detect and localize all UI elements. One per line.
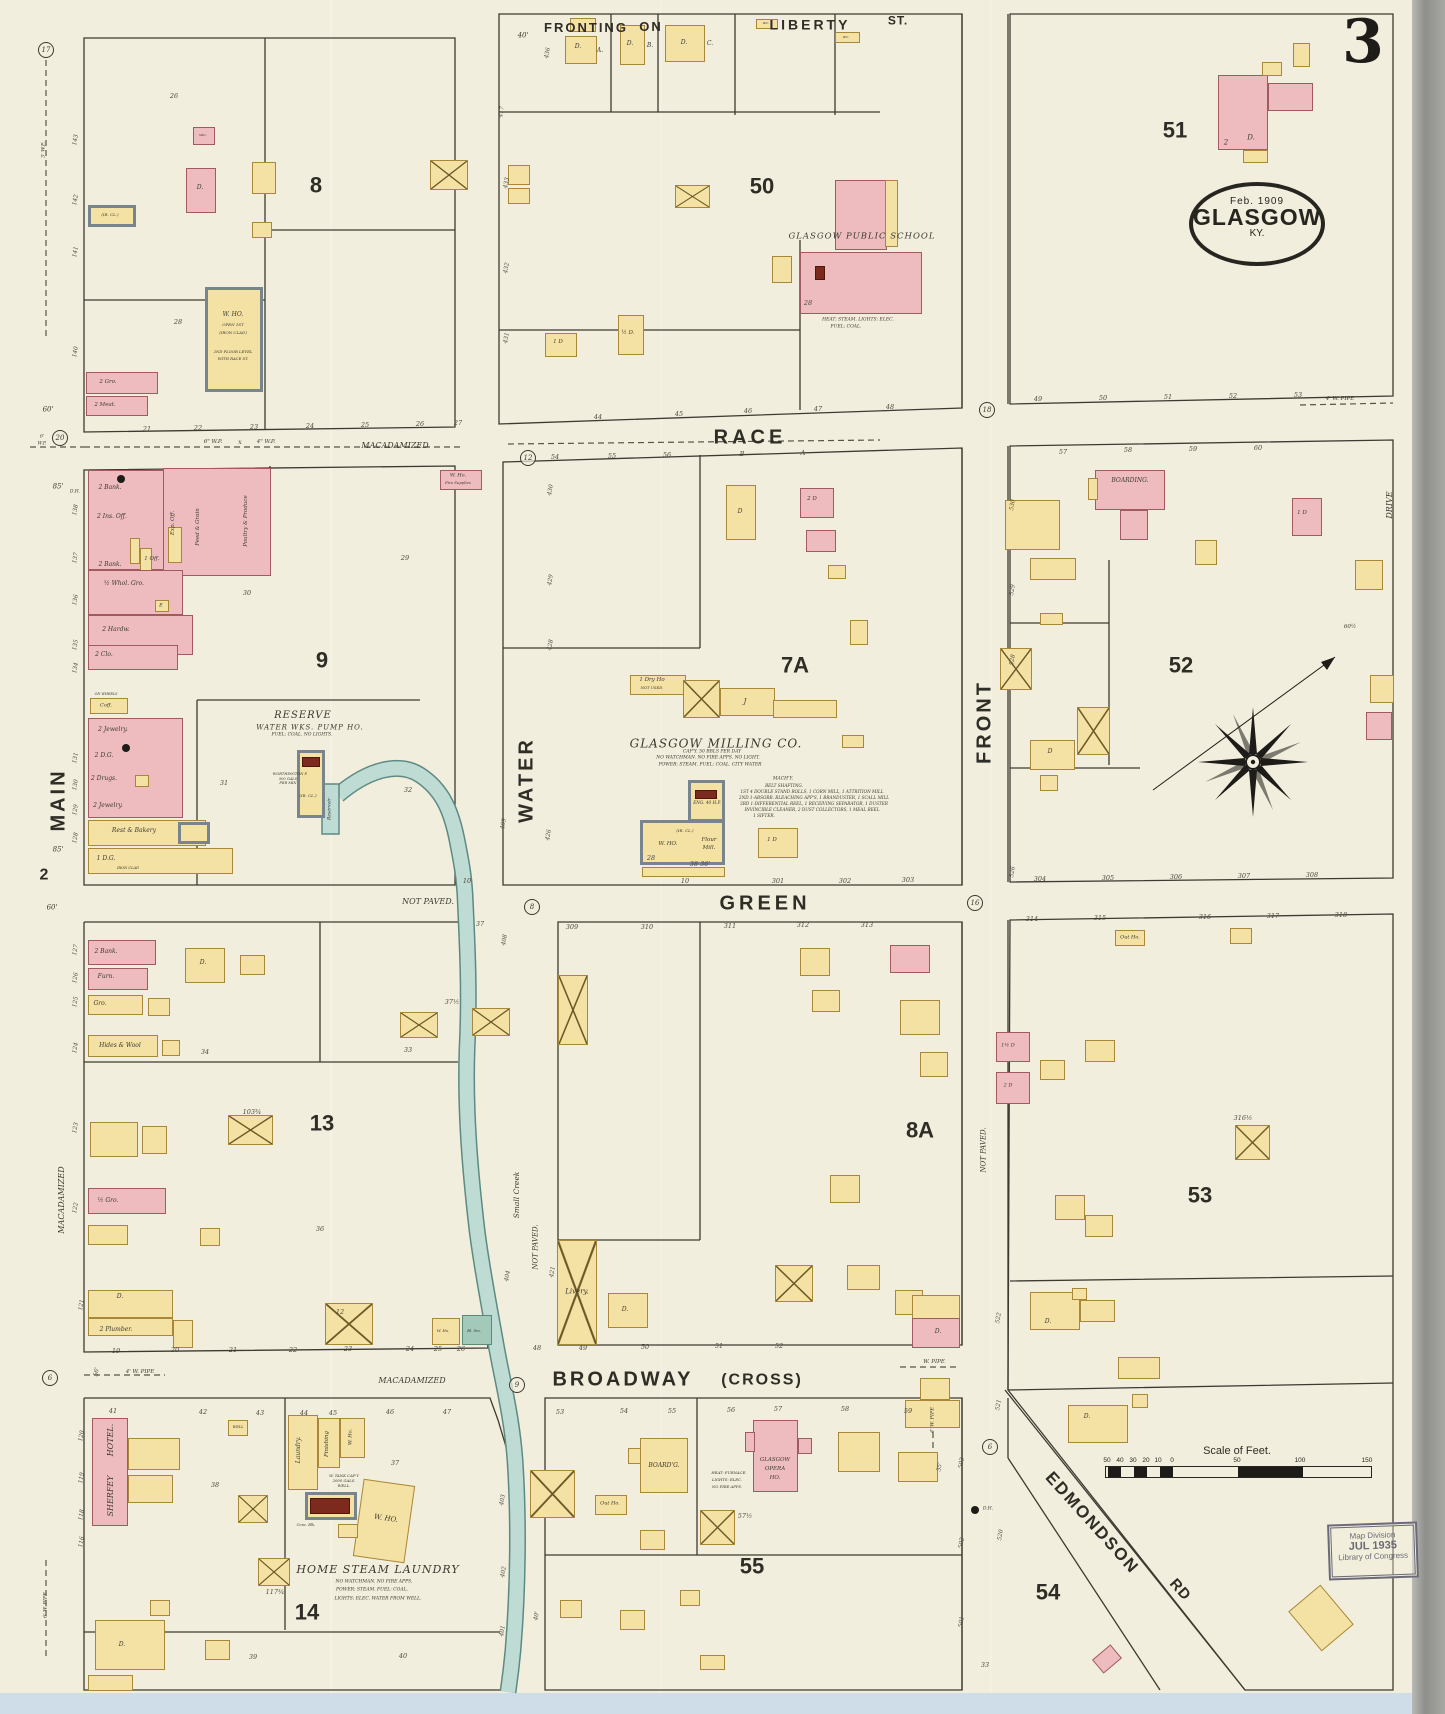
map-label: NOT PAVED.: [980, 1127, 987, 1172]
map-label: FUEL: COAL. NO LIGHTS.: [271, 734, 332, 739]
lot-number: 45: [329, 1409, 337, 1417]
lot-number: 23: [344, 1345, 352, 1353]
lot-number: 46: [744, 407, 752, 415]
map-label: 6' W. PIPE: [43, 1592, 48, 1618]
street-width-marker: 9: [509, 1377, 525, 1393]
frame-building: [205, 287, 263, 392]
map-label: PER MIN: [279, 782, 296, 786]
frame-building: [258, 1558, 290, 1586]
frame-building: [1085, 1040, 1115, 1062]
lot-number: 38: [211, 1481, 219, 1489]
lot-number: 316½: [1234, 1114, 1253, 1122]
frame-building: [205, 1640, 230, 1660]
lot-number: 10: [681, 877, 689, 885]
lot-number: 103¾: [243, 1108, 262, 1116]
lot-number: 42: [199, 1408, 207, 1416]
map-label: 60½: [1344, 625, 1356, 631]
frame-building: [200, 1228, 220, 1246]
map-label: D.H.: [983, 1508, 993, 1513]
lot-number: 54: [551, 453, 559, 461]
map-label: 2 D: [807, 497, 817, 503]
scale-tick-label: 10: [1154, 1457, 1161, 1464]
map-label: 6" W.P.: [204, 440, 223, 446]
frame-building: [683, 680, 720, 718]
lot-number: 34: [201, 1048, 209, 1056]
lot-number: 302: [839, 877, 851, 885]
frame-building: [430, 160, 468, 190]
frame-building: [920, 1052, 948, 1077]
frame-building: [1132, 1394, 1148, 1408]
map-label: NOT PAVED.: [402, 898, 454, 906]
scale-segment: [1134, 1467, 1147, 1477]
lot-number: 47: [443, 1408, 451, 1416]
map-label: ½ D.: [621, 331, 634, 337]
map-label: Out Ho.: [600, 1501, 620, 1506]
boiler: [310, 1498, 350, 1514]
map-label: 1ST 4 DOUBLE STAND ROLLS, 1 CORN MILL, 1…: [740, 790, 883, 794]
map-label: D: [738, 509, 743, 515]
map-label: D.: [935, 1329, 942, 1335]
frame-building: [1293, 43, 1310, 67]
scale-tick-label: 0: [1170, 1457, 1174, 1464]
map-label: BOARDING.: [1111, 478, 1148, 484]
map-label: LIGHTS: ELEC.: [712, 1478, 742, 1482]
map-label: (IR. CL.): [101, 213, 118, 217]
lot-number: 53: [556, 1408, 564, 1416]
map-label: 2ND FLOOR LEVEL: [214, 350, 253, 354]
frame-building: [1118, 1357, 1160, 1379]
lot-number: 31: [220, 779, 228, 787]
lot-number: 22: [289, 1346, 297, 1354]
map-label: GLASGOW MILLING CO.: [630, 738, 803, 751]
map-label: 1 Dry Ho: [639, 678, 664, 684]
street-name-green: GREEN: [719, 894, 810, 915]
frame-building: [675, 185, 710, 208]
map-label: NO WATCHMAN. NO FIRE APPS.: [336, 1581, 413, 1586]
map-label: GLASGOW PUBLIC SCHOOL: [788, 233, 935, 242]
map-label: POWER: STEAM. FUEL: COAL.: [336, 1589, 408, 1594]
map-label: WELL: [232, 1426, 243, 1430]
map-label: Feed & Grain: [196, 508, 202, 546]
frame-building: [238, 1495, 268, 1523]
map-label: B.: [647, 43, 653, 49]
map-label: D: [1048, 749, 1053, 755]
frame-building: [775, 1265, 813, 1302]
lot-number: 41: [109, 1407, 117, 1415]
frame-building: [142, 1126, 167, 1154]
map-label: vac.: [199, 133, 207, 137]
lot-number: 315: [1094, 914, 1106, 922]
map-label: NOT USED.: [641, 686, 664, 690]
street-name-water: WATER: [517, 737, 538, 823]
map-label: 2: [1224, 139, 1228, 146]
lot-number: 304: [1034, 875, 1046, 883]
map-label: BOARD'G.: [648, 1463, 679, 1469]
lot-number: 12: [336, 1308, 344, 1316]
frame-building: [472, 1008, 510, 1036]
frame-building: [1235, 1125, 1270, 1160]
frame-building: [800, 948, 830, 976]
lot-number: 60: [1254, 444, 1262, 452]
map-label: C.: [707, 41, 713, 47]
map-label: 1 D: [1297, 511, 1307, 517]
map-label: 2 Jewelry.: [98, 727, 128, 733]
lot-number: 43: [256, 1409, 264, 1417]
frame-building: [850, 620, 868, 645]
frame-building: [898, 1452, 938, 1482]
map-label: 40': [518, 32, 529, 39]
lot-number: 316: [1199, 913, 1211, 921]
map-label: 85': [53, 846, 64, 853]
map-label: ½ Gro.: [98, 1198, 119, 1204]
frame-building: [720, 688, 775, 716]
lot-number: 313: [861, 921, 873, 929]
frame-building: [88, 1290, 173, 1318]
street-name-broadway: BROADWAY: [552, 1370, 693, 1391]
brick-building: [890, 945, 930, 973]
lot-number: 20: [171, 1346, 179, 1354]
lot-number: 51: [1164, 393, 1172, 401]
map-label: x: [238, 440, 241, 446]
map-label: 6': [40, 436, 44, 441]
frame-building: [1077, 707, 1110, 755]
lot-number: 23: [250, 423, 258, 431]
map-label: D.: [119, 1642, 126, 1648]
map-label: DRIVE: [1386, 491, 1394, 518]
frame-building: [642, 867, 725, 877]
map-label: Finishing: [325, 1431, 331, 1457]
map-label: Flour: [701, 838, 716, 844]
lot-number: 37: [391, 1459, 399, 1467]
lot-number: 26: [416, 420, 424, 428]
map-label: D.: [681, 40, 688, 46]
lot-number: B: [740, 450, 745, 458]
map-label: w.c.: [843, 36, 850, 40]
lot-number: 32: [404, 786, 412, 794]
frame-building: [130, 538, 140, 564]
lot-number: 56: [663, 451, 671, 459]
lot-number: 317: [1267, 912, 1279, 920]
lot-number: 26: [170, 92, 178, 100]
map-label: 2 D.G.: [95, 753, 114, 759]
frame-building: [1088, 478, 1098, 500]
map-label: 1 Off.: [144, 557, 159, 563]
street-name-on: ON: [639, 20, 663, 34]
map-label: WATER WKS. PUMP HO.: [256, 724, 363, 731]
frame-building: [1068, 1405, 1128, 1443]
map-label: WITH RACE ST.: [218, 357, 249, 361]
brick-building: [798, 1438, 812, 1454]
frame-building: [900, 1000, 940, 1035]
frame-building: [1040, 1060, 1065, 1080]
street-name-race: RACE: [714, 428, 787, 449]
map-label: INVINCIBLE CLEANER, 2 DUST COLLECTORS, 1…: [745, 808, 880, 812]
frame-building: [338, 1524, 358, 1538]
frame-building: [508, 188, 530, 204]
scale-segment: [1173, 1467, 1238, 1477]
scale-tick-label: 50: [1233, 1457, 1240, 1464]
map-label: 2 Plumber.: [100, 1327, 133, 1333]
map-label: 60': [47, 904, 58, 911]
frame-building: [680, 1590, 700, 1606]
lot-number: 33: [404, 1046, 412, 1054]
block-number-52: 52: [1169, 653, 1193, 676]
map-label: FUEL: COAL.: [831, 326, 862, 331]
street-name-front: FRONT: [975, 680, 996, 764]
lot-number: 314: [1026, 915, 1038, 923]
map-label: Out Ho.: [1120, 935, 1140, 940]
lot-number: 30: [243, 589, 251, 597]
map-label: GLASGOW: [760, 1458, 790, 1464]
map-label: 85': [53, 483, 64, 490]
map-label: Laundry.: [296, 1437, 302, 1464]
lot-number: 311: [724, 922, 736, 930]
block-number-9: 9: [316, 648, 328, 671]
brick-building: [800, 488, 834, 518]
frame-building: [1230, 928, 1252, 944]
map-label: W. Ho.: [437, 1329, 449, 1333]
map-label: D.: [1045, 1319, 1052, 1325]
lot-number: 25: [434, 1345, 442, 1353]
lot-number: 50: [641, 1343, 649, 1351]
frame-building: [128, 1475, 173, 1503]
map-label: D.: [197, 185, 204, 191]
sanborn-map-page: { "page":{"number":"3"}, "stamp":{"date"…: [0, 0, 1445, 1714]
lot-number: 49: [1034, 395, 1042, 403]
map-label: W. Ho.: [348, 1429, 353, 1445]
frame-building: [228, 1115, 273, 1145]
map-label: D.: [622, 1307, 629, 1313]
map-label: 2 Ins. Off.: [97, 514, 127, 520]
lot-number: 59: [904, 1407, 912, 1415]
lot-number: 46: [386, 1408, 394, 1416]
frame-building: [1085, 1215, 1113, 1237]
map-label: Poultry & Produce: [244, 495, 250, 546]
boiler: [815, 266, 825, 280]
map-label: ON WHEELS: [95, 693, 118, 697]
map-label: D.: [200, 960, 207, 966]
block-number-55: 55: [740, 1554, 764, 1577]
lot-number: 301: [772, 877, 784, 885]
lot-number: 49: [579, 1344, 587, 1352]
map-label: POWER: STEAM. FUEL: COAL. CITY WATER: [658, 764, 761, 769]
street-name-cross: (CROSS): [721, 1373, 803, 1390]
lot-number: 24: [406, 1345, 414, 1353]
map-label: 2 Clo.: [95, 652, 113, 658]
frame-building: [162, 1040, 180, 1056]
map-label: 2 Bank.: [94, 949, 117, 955]
frame-building: [90, 1122, 138, 1157]
lot-number: 10: [463, 877, 471, 885]
frame-building: [1243, 150, 1268, 163]
lot-number: 48: [886, 403, 894, 411]
map-label: 4' W. PIPE: [126, 1370, 155, 1376]
map-label: W. HO.: [659, 842, 678, 848]
frame-building: [830, 1175, 860, 1203]
brick-building: [996, 1072, 1030, 1104]
frame-building: [150, 1600, 170, 1616]
frame-building: [640, 1530, 665, 1550]
map-label: OPERA: [765, 1467, 785, 1473]
stamp-city: GLASGOW: [1193, 207, 1321, 228]
map-label: Gro.: [93, 1001, 106, 1007]
map-label: 1 D.G.: [97, 856, 116, 862]
map-label: NO WATCHMAN. NO FIRE APPS. NO LIGHT.: [656, 757, 759, 762]
frame-building: [128, 1438, 180, 1470]
frame-building: [508, 165, 530, 185]
map-label: 2ND 1-ABSORB. BLEACHING APP'S, 1 BRANDUS…: [739, 796, 889, 800]
lot-number: 24: [306, 422, 314, 430]
lot-number: 58: [841, 1405, 849, 1413]
map-label: (IR. CL.): [676, 829, 693, 833]
frame-building: [288, 1415, 318, 1490]
frame-building: [95, 1620, 165, 1670]
brick-building: [1366, 712, 1392, 740]
map-label: HOTEL.: [107, 1424, 115, 1457]
frame-building: [773, 700, 837, 718]
lot-number: 57: [1059, 448, 1067, 456]
frame-building: [1030, 740, 1075, 770]
frame-building: [1040, 775, 1058, 791]
brick-building: [745, 1432, 755, 1452]
brick-building: [1120, 510, 1148, 540]
lot-number: 44: [594, 413, 602, 421]
map-label: Rest & Bakery: [112, 828, 156, 834]
map-label: MACADAMIZED: [58, 1166, 66, 1233]
street-name-st: ST.: [888, 15, 908, 28]
map-label: Hides & Wool: [99, 1043, 141, 1049]
map-label: J: [744, 698, 747, 705]
lot-number: 29: [401, 554, 409, 562]
lot-number: 39: [249, 1653, 257, 1661]
map-label: NOT PAVED.: [532, 1224, 539, 1269]
frame-building: [530, 1470, 575, 1518]
map-label: HEAT: STEAM. LIGHTS: ELEC.: [822, 319, 894, 324]
street-width-marker: 6: [42, 1370, 58, 1386]
lot-number: 306: [1170, 873, 1182, 881]
map-label: MACH'Y.: [773, 778, 793, 783]
map-label: (IRON CLAD): [219, 331, 247, 335]
lot-number: 57: [774, 1405, 782, 1413]
map-label: D.: [627, 41, 634, 47]
lot-number: 21: [143, 425, 151, 433]
block-number-13: 13: [310, 1111, 334, 1134]
map-label: W.P.: [38, 443, 47, 448]
frame-building: [558, 975, 588, 1045]
scale-segment: [1121, 1467, 1134, 1477]
frame-building: [1262, 62, 1282, 76]
compass-rose: [1153, 657, 1335, 817]
map-label: 1 D: [767, 838, 777, 844]
map-label: D.H.: [70, 491, 80, 496]
lot-number: 318: [1335, 911, 1347, 919]
scale-tick-label: 30: [1129, 1457, 1136, 1464]
lot-number: 312: [797, 921, 809, 929]
map-label: MACADAMIZED: [361, 442, 428, 450]
frame-building: [1370, 675, 1394, 703]
lot-number: 307: [1238, 872, 1250, 880]
lot-number: 28: [174, 318, 182, 326]
frame-building: [1055, 1195, 1085, 1220]
lot-number: 52: [775, 1342, 783, 1350]
lot-number: 53: [1294, 391, 1302, 399]
lot-number: 38 36': [690, 860, 710, 868]
lot-number: 55: [608, 452, 616, 460]
map-label: Exp. Off.: [171, 511, 177, 535]
map-label: 2 Gro.: [99, 380, 116, 386]
lot-number: 57½: [738, 1512, 753, 1520]
map-label: 2 Bank.: [98, 562, 121, 568]
map-label: Coff.: [100, 703, 112, 708]
street-width-marker: 17: [38, 42, 54, 58]
map-label: E: [159, 603, 163, 608]
map-label: 2 Hardw.: [102, 627, 130, 633]
frame-building: [148, 998, 170, 1016]
brick-building: [1268, 83, 1313, 111]
map-label: Fire Supplies: [445, 481, 471, 485]
lot-number: 26: [457, 1345, 465, 1353]
frame-building: [88, 1225, 128, 1245]
frame-building: [560, 1600, 582, 1618]
hydrant-dot: [971, 1506, 979, 1514]
frame-building: [828, 565, 846, 579]
frame-building: [252, 222, 272, 238]
map-label: D.: [1084, 1414, 1091, 1420]
lot-number: 44: [300, 1409, 308, 1417]
map-label: W. PIPE: [923, 1360, 945, 1366]
map-label: D.: [1247, 134, 1255, 141]
frame-building: [1030, 558, 1076, 580]
map-label: W. HO.: [223, 312, 244, 318]
lot-number: 310: [641, 923, 653, 931]
lot-number: 48: [533, 1344, 541, 1352]
frame-building: [912, 1295, 960, 1319]
scale-segment: [1238, 1467, 1303, 1477]
frame-building: [700, 1655, 725, 1670]
map-label: 3' W.P.: [41, 142, 46, 158]
boiler: [695, 790, 717, 799]
scale-segment: [1108, 1467, 1121, 1477]
frame-building: [400, 1012, 438, 1038]
map-label: w.c.: [763, 22, 770, 26]
map-label: 1½ D: [1001, 1043, 1015, 1048]
street-width-marker: 20: [52, 430, 68, 446]
map-label: Furn.: [98, 974, 115, 980]
frame-building: [842, 735, 864, 748]
frame-building: [772, 256, 792, 283]
scale-tick-label: 50: [1103, 1457, 1110, 1464]
lot-number: 58: [1124, 446, 1132, 454]
block-number-50: 50: [750, 174, 774, 197]
frame-building: [620, 1610, 645, 1630]
map-label: 1 SIFTER.: [753, 814, 775, 818]
map-label: HO.: [770, 1476, 781, 1482]
scale-segment: [1160, 1467, 1173, 1477]
lot-number: 33: [981, 1661, 989, 1669]
lot-number: 117¾: [266, 1588, 285, 1596]
map-label: 4" W.P.: [257, 440, 276, 446]
frame-building: [700, 1510, 735, 1545]
frame-building: [758, 828, 798, 858]
scale-tick-label: 20: [1142, 1457, 1149, 1464]
map-label: NO FIRE APPS.: [712, 1485, 742, 1489]
block-number-51: 51: [1163, 118, 1187, 141]
lot-number: 50: [1099, 394, 1107, 402]
frame-building: [920, 1378, 950, 1400]
brick-building: [1292, 498, 1322, 536]
frame-building: [847, 1265, 880, 1290]
lot-number: 28: [647, 854, 655, 862]
